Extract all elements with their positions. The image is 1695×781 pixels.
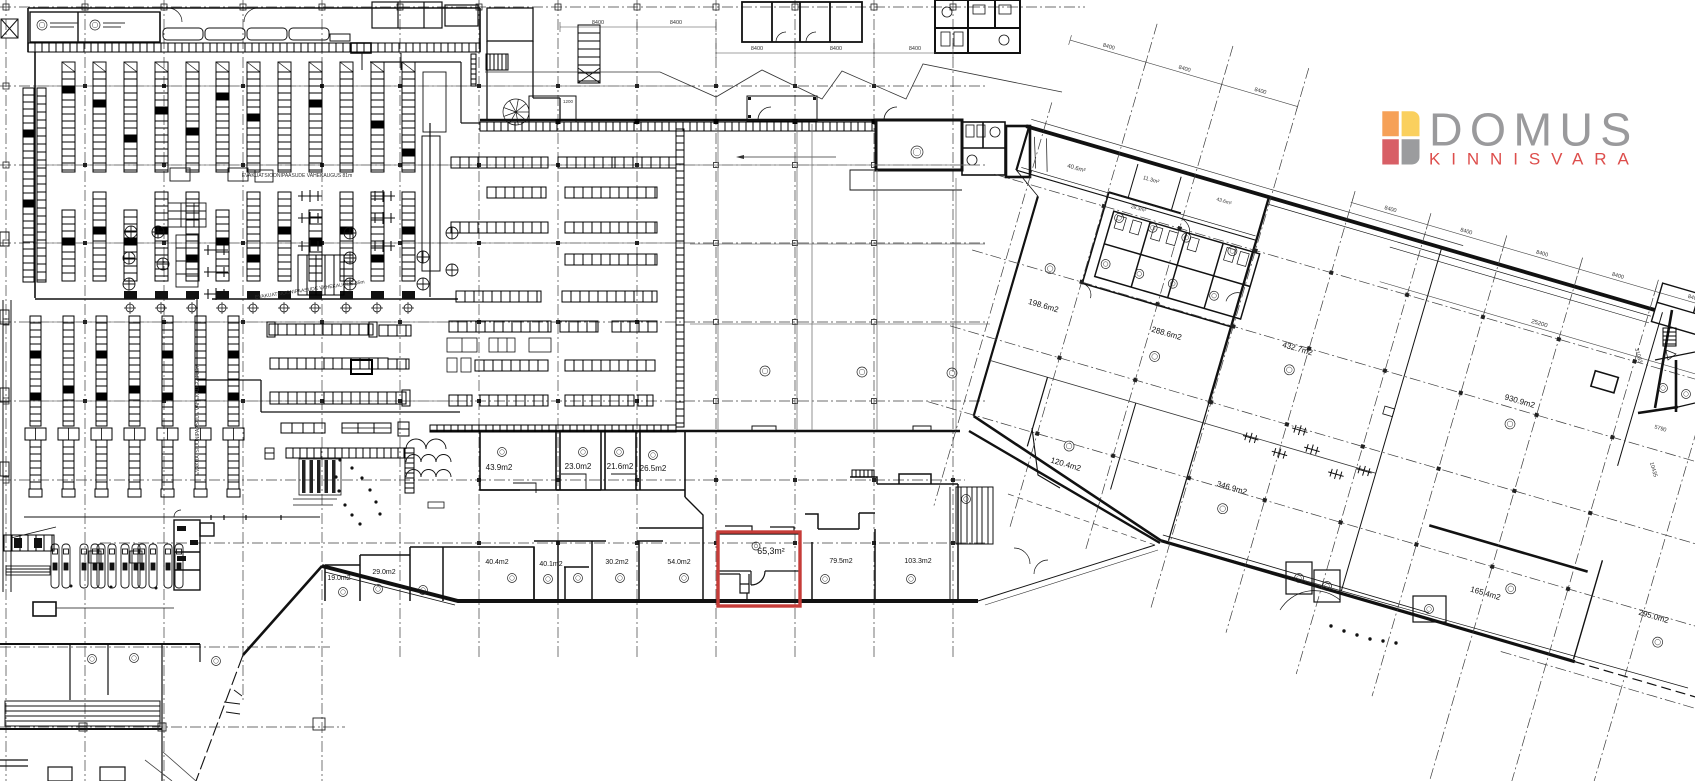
svg-text:EVAKUATSIOONIPAASUDE VAHEKAUGU: EVAKUATSIOONIPAASUDE VAHEKAUGUS 86m [195,365,201,476]
svg-text:8400: 8400 [751,46,763,52]
svg-text:8400: 8400 [830,46,842,52]
svg-text:40.4m2: 40.4m2 [485,559,508,566]
svg-text:8400: 8400 [670,20,682,26]
svg-text:43.9m2: 43.9m2 [486,463,513,472]
svg-text:23.0m2: 23.0m2 [565,462,592,471]
svg-text:8400: 8400 [592,20,604,26]
svg-text:54.0m2: 54.0m2 [667,559,690,566]
svg-text:79.5m2: 79.5m2 [829,558,852,565]
svg-text:65,3m²: 65,3m² [757,546,784,556]
svg-text:KINNISVARA: KINNISVARA [1429,149,1640,168]
svg-text:EVAKUATSIOONIPAASUDE VAHEKAUGU: EVAKUATSIOONIPAASUDE VAHEKAUGUS 81m [242,173,353,179]
svg-text:DOMUS: DOMUS [1429,104,1639,156]
svg-text:30.2m2: 30.2m2 [605,559,628,566]
svg-text:26.5m2: 26.5m2 [640,464,667,473]
svg-text:103.3m2: 103.3m2 [904,558,931,565]
svg-text:19.0m2: 19.0m2 [327,575,350,582]
svg-text:8400: 8400 [909,46,921,52]
svg-text:29.0m2: 29.0m2 [372,569,395,576]
svg-text:40.1m2: 40.1m2 [539,561,562,568]
svg-text:21.6m2: 21.6m2 [607,462,634,471]
svg-text:1200: 1200 [563,99,574,104]
